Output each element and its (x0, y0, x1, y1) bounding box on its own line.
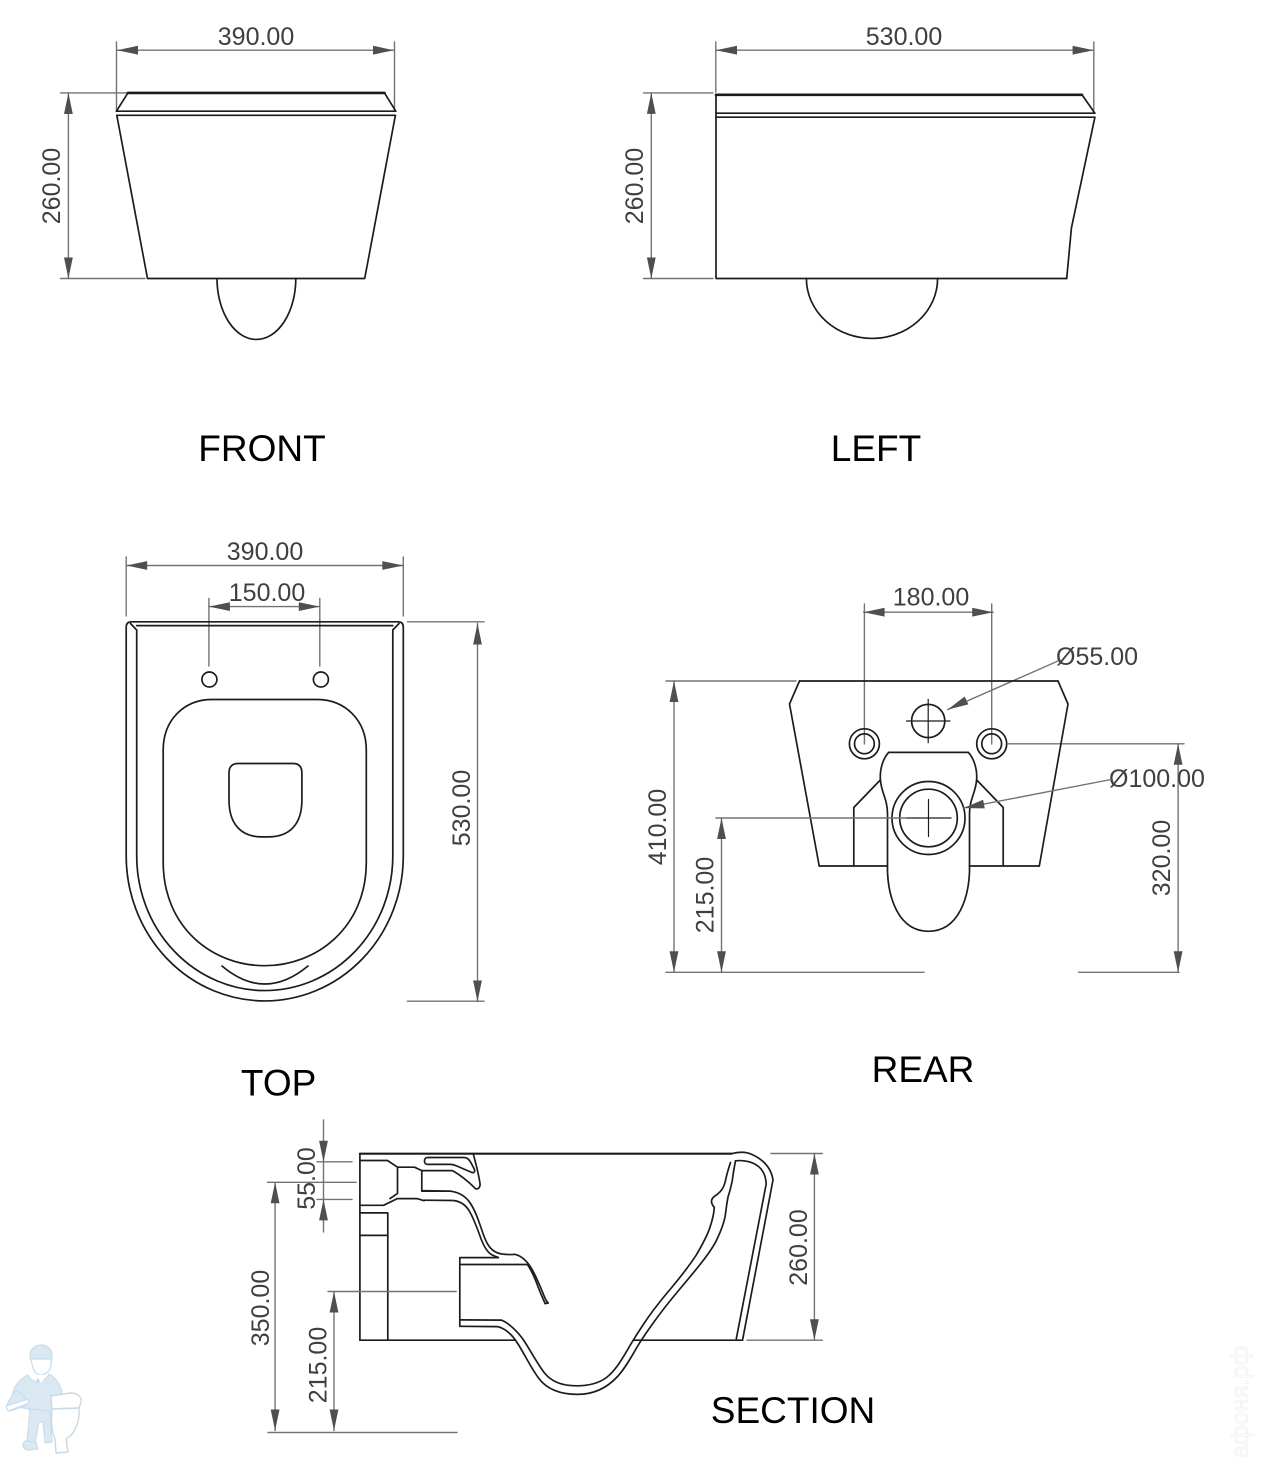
svg-text:215.00: 215.00 (305, 1327, 333, 1403)
svg-text:LEFT: LEFT (831, 428, 921, 469)
svg-text:150.00: 150.00 (229, 579, 305, 607)
svg-text:180.00: 180.00 (893, 584, 969, 612)
svg-text:Ø55.00: Ø55.00 (1056, 643, 1138, 671)
svg-text:SECTION: SECTION (711, 1390, 875, 1431)
svg-text:TOP: TOP (241, 1063, 316, 1104)
svg-text:320.00: 320.00 (1148, 820, 1176, 896)
svg-text:390.00: 390.00 (218, 23, 294, 51)
svg-text:260.00: 260.00 (621, 148, 649, 224)
svg-text:Ø100.00: Ø100.00 (1109, 765, 1205, 793)
svg-text:410.00: 410.00 (644, 789, 672, 865)
svg-text:260.00: 260.00 (38, 148, 66, 224)
svg-text:530.00: 530.00 (448, 770, 476, 846)
svg-text:215.00: 215.00 (692, 857, 720, 933)
svg-text:390.00: 390.00 (227, 538, 303, 566)
svg-text:350.00: 350.00 (247, 1270, 275, 1346)
svg-text:REAR: REAR (872, 1049, 975, 1090)
svg-text:афоня.рф: афоня.рф (1227, 1346, 1254, 1458)
svg-text:55.00: 55.00 (293, 1147, 321, 1210)
svg-text:530.00: 530.00 (866, 23, 942, 51)
svg-text:FRONT: FRONT (198, 428, 325, 469)
svg-text:260.00: 260.00 (785, 1209, 813, 1285)
